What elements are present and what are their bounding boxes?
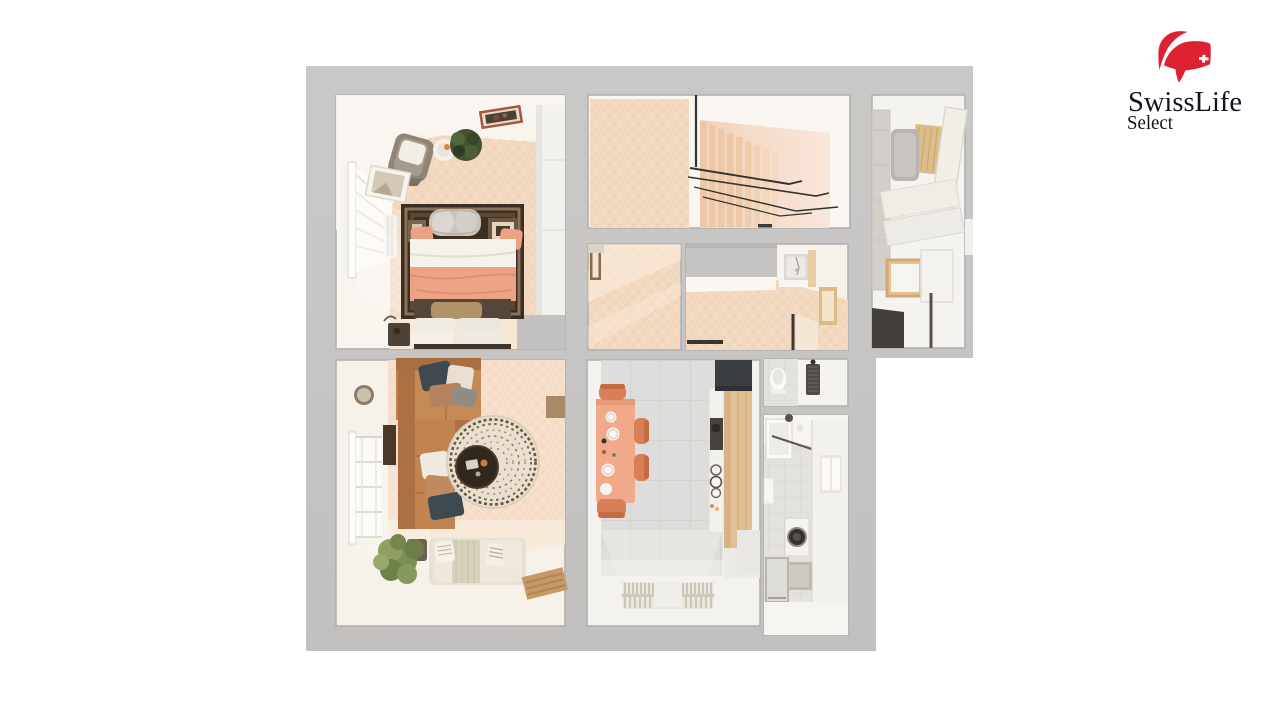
svg-text:Select: Select <box>1127 112 1173 134</box>
